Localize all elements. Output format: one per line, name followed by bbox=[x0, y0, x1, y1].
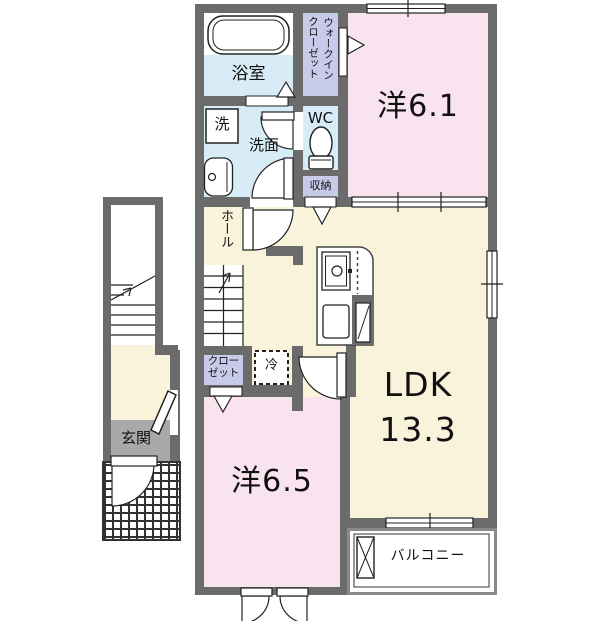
ldk-label-line1: LDK bbox=[348, 363, 488, 408]
bathroom-label: 浴室 bbox=[204, 65, 293, 84]
walk-in-closet-label-line2: クローゼット bbox=[306, 16, 321, 100]
ac-unit-icon bbox=[357, 537, 374, 578]
ldk-label: LDK 13.3 bbox=[348, 363, 488, 452]
bathtub-icon bbox=[208, 16, 289, 54]
washroom-label: 洗面 bbox=[238, 137, 290, 154]
closet-label-line2: ゼット bbox=[204, 368, 243, 380]
ldk-label-line2: 13.3 bbox=[348, 408, 488, 453]
vanity-sink-icon bbox=[205, 158, 233, 196]
walk-in-closet-label-line1: ウォークイン bbox=[321, 17, 336, 97]
washer-label: 洗 bbox=[206, 116, 238, 133]
wc-label: WC bbox=[303, 110, 338, 127]
floor-plan: 浴室 洗 洗面 ウォークイン クローゼット WC 収納 ホール クロー ゼット … bbox=[0, 0, 612, 621]
western-room-1-label: 洋6.1 bbox=[348, 90, 488, 123]
toilet-icon bbox=[309, 127, 333, 169]
entrance-label: 玄関 bbox=[111, 430, 161, 447]
outdoor-stair-tower bbox=[103, 197, 180, 462]
western-room-2-label: 洋6.5 bbox=[204, 465, 340, 498]
closet-label-line1: クロー bbox=[204, 356, 243, 368]
hall-door-icon bbox=[243, 207, 303, 250]
kitchen-counter-icon bbox=[317, 247, 373, 345]
storage-label: 収納 bbox=[303, 180, 338, 192]
porch bbox=[103, 456, 180, 540]
balcony-label: バルコニー bbox=[374, 549, 482, 564]
fridge-label: 冷 bbox=[255, 359, 288, 373]
hall-label: ホール bbox=[216, 209, 235, 267]
